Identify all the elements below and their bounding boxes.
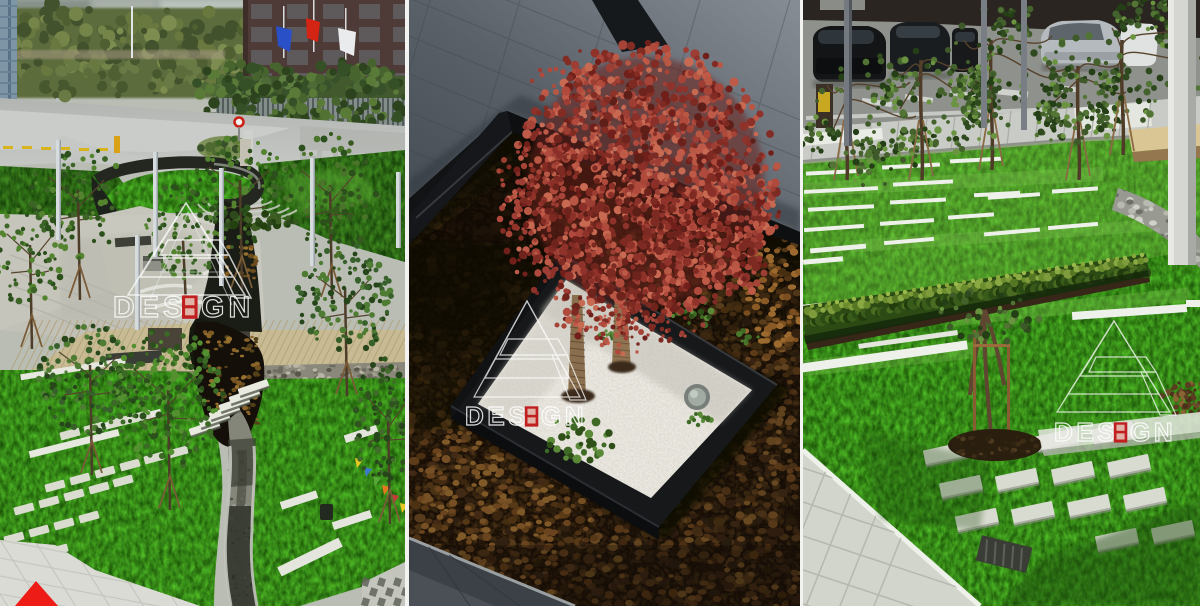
svg-text:GN: GN: [201, 291, 254, 324]
svg-text:DES: DES: [113, 291, 187, 324]
